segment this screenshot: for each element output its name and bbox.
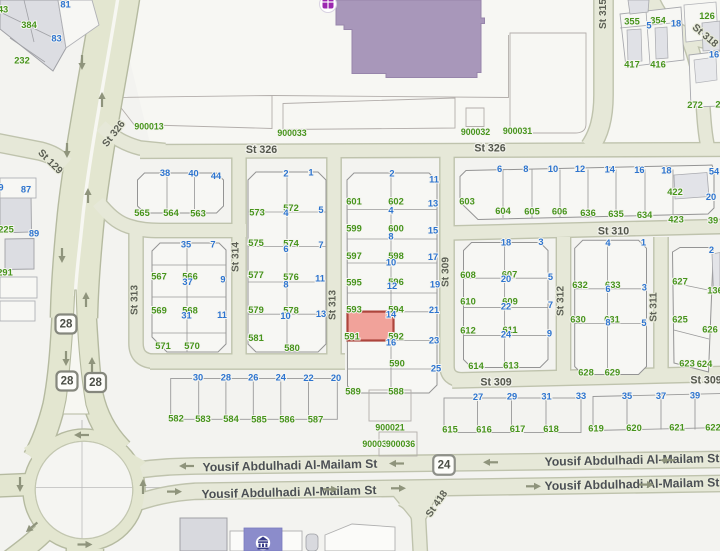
svg-text:31: 31 xyxy=(541,391,551,401)
svg-text:28: 28 xyxy=(61,376,74,388)
svg-text:44: 44 xyxy=(211,171,222,181)
svg-text:900033: 900033 xyxy=(277,128,306,138)
svg-text:25: 25 xyxy=(431,363,441,373)
svg-text:605: 605 xyxy=(524,206,540,216)
svg-text:900013: 900013 xyxy=(134,121,163,131)
svg-text:900036: 900036 xyxy=(386,439,415,449)
svg-text:570: 570 xyxy=(184,341,200,351)
svg-text:8: 8 xyxy=(388,231,393,241)
svg-text:589: 589 xyxy=(345,386,361,396)
svg-text:10: 10 xyxy=(548,164,558,174)
svg-text:23: 23 xyxy=(429,335,439,345)
svg-text:2: 2 xyxy=(709,245,714,255)
svg-text:900031: 900031 xyxy=(503,126,532,136)
svg-text:St 315: St 315 xyxy=(598,0,609,29)
svg-text:7: 7 xyxy=(318,240,323,250)
svg-text:5: 5 xyxy=(318,205,323,215)
svg-text:613: 613 xyxy=(503,360,519,370)
svg-text:573: 573 xyxy=(249,207,265,217)
svg-text:37: 37 xyxy=(182,277,192,287)
svg-text:9: 9 xyxy=(0,182,4,192)
svg-text:603: 603 xyxy=(459,196,475,206)
svg-text:634: 634 xyxy=(637,210,653,220)
svg-text:423: 423 xyxy=(668,214,684,224)
svg-text:81: 81 xyxy=(60,0,70,9)
svg-text:St 326: St 326 xyxy=(474,142,505,154)
svg-text:St 312: St 312 xyxy=(556,286,567,316)
svg-text:136: 136 xyxy=(707,285,720,295)
svg-text:417: 417 xyxy=(624,59,640,69)
svg-text:13: 13 xyxy=(428,198,438,208)
svg-text:6: 6 xyxy=(283,244,288,254)
svg-text:4: 4 xyxy=(605,238,611,248)
svg-text:610: 610 xyxy=(460,296,476,306)
svg-text:601: 601 xyxy=(346,196,362,206)
svg-text:627: 627 xyxy=(672,276,688,286)
svg-text:900021: 900021 xyxy=(375,422,404,432)
svg-text:622: 622 xyxy=(705,422,720,432)
svg-text:38: 38 xyxy=(160,168,170,178)
svg-text:2: 2 xyxy=(389,168,394,178)
svg-text:12: 12 xyxy=(387,281,397,291)
svg-text:614: 614 xyxy=(468,361,484,371)
svg-text:St 313: St 313 xyxy=(130,285,141,315)
svg-text:St 309: St 309 xyxy=(441,257,452,287)
svg-text:2: 2 xyxy=(715,99,720,109)
svg-text:27: 27 xyxy=(473,392,483,402)
svg-text:629: 629 xyxy=(605,367,621,377)
svg-text:28: 28 xyxy=(89,377,102,389)
svg-text:10: 10 xyxy=(280,311,290,321)
svg-text:St 311: St 311 xyxy=(649,292,660,322)
svg-text:29: 29 xyxy=(507,391,517,401)
svg-text:581: 581 xyxy=(248,333,264,343)
svg-text:10: 10 xyxy=(386,257,396,267)
svg-text:619: 619 xyxy=(588,423,604,433)
svg-text:623: 623 xyxy=(679,358,695,368)
svg-text:St 326: St 326 xyxy=(246,144,277,156)
svg-text:35: 35 xyxy=(181,239,191,249)
svg-text:22: 22 xyxy=(303,373,313,383)
svg-text:636: 636 xyxy=(580,208,596,218)
svg-text:577: 577 xyxy=(248,270,264,280)
svg-text:597: 597 xyxy=(346,251,362,261)
svg-text:1: 1 xyxy=(641,237,646,247)
svg-text:625: 625 xyxy=(672,314,688,324)
svg-text:20: 20 xyxy=(501,274,511,284)
svg-text:567: 567 xyxy=(151,271,167,281)
svg-text:35: 35 xyxy=(622,391,632,401)
svg-text:20: 20 xyxy=(706,192,716,202)
svg-text:5: 5 xyxy=(646,20,651,30)
svg-text:565: 565 xyxy=(134,208,150,218)
svg-text:14: 14 xyxy=(605,164,616,174)
svg-text:12: 12 xyxy=(575,164,585,174)
svg-text:4: 4 xyxy=(388,205,394,215)
svg-text:617: 617 xyxy=(510,424,526,434)
svg-text:37: 37 xyxy=(656,391,666,401)
svg-text:3: 3 xyxy=(538,237,543,247)
svg-text:11: 11 xyxy=(315,273,325,283)
svg-text:19: 19 xyxy=(430,279,440,289)
svg-text:17: 17 xyxy=(428,252,438,262)
svg-text:16: 16 xyxy=(386,337,396,347)
svg-text:599: 599 xyxy=(346,223,362,233)
svg-text:635: 635 xyxy=(608,209,624,219)
svg-text:5: 5 xyxy=(641,318,646,328)
svg-text:1: 1 xyxy=(308,167,313,177)
svg-text:31: 31 xyxy=(181,310,191,320)
svg-text:384: 384 xyxy=(21,20,37,30)
svg-text:18: 18 xyxy=(501,237,511,247)
svg-text:587: 587 xyxy=(308,414,324,424)
svg-text:585: 585 xyxy=(251,414,267,424)
svg-text:22: 22 xyxy=(501,301,511,311)
svg-text:24: 24 xyxy=(438,460,451,472)
svg-text:583: 583 xyxy=(195,414,211,424)
svg-text:16: 16 xyxy=(634,165,644,175)
svg-text:28: 28 xyxy=(60,319,73,331)
svg-text:2: 2 xyxy=(283,168,288,178)
svg-text:575: 575 xyxy=(248,238,264,248)
svg-text:83: 83 xyxy=(51,33,61,43)
svg-text:6: 6 xyxy=(605,284,610,294)
svg-text:126: 126 xyxy=(699,11,715,21)
svg-text:579: 579 xyxy=(248,305,264,315)
svg-text:7: 7 xyxy=(548,300,553,310)
svg-text:590: 590 xyxy=(389,358,405,368)
svg-text:11: 11 xyxy=(217,310,227,320)
svg-text:571: 571 xyxy=(155,341,171,351)
svg-text:900032: 900032 xyxy=(461,127,490,137)
svg-text:595: 595 xyxy=(346,277,362,287)
svg-text:612: 612 xyxy=(460,325,476,335)
svg-text:24: 24 xyxy=(276,373,287,383)
svg-text:416: 416 xyxy=(650,59,666,69)
svg-text:9: 9 xyxy=(547,328,552,338)
svg-text:582: 582 xyxy=(168,413,184,423)
svg-text:355: 355 xyxy=(624,16,640,26)
svg-text:569: 569 xyxy=(151,305,167,315)
svg-text:564: 564 xyxy=(163,208,179,218)
svg-text:14: 14 xyxy=(386,309,397,319)
svg-text:618: 618 xyxy=(543,424,559,434)
svg-text:354: 354 xyxy=(650,15,666,25)
svg-text:225: 225 xyxy=(0,224,14,234)
svg-text:St 309: St 309 xyxy=(690,374,720,386)
svg-text:26: 26 xyxy=(248,372,258,382)
svg-text:291: 291 xyxy=(0,267,13,277)
svg-text:624: 624 xyxy=(697,359,713,369)
svg-text:16: 16 xyxy=(709,49,719,59)
svg-text:422: 422 xyxy=(667,187,683,197)
svg-text:616: 616 xyxy=(476,424,492,434)
svg-text:604: 604 xyxy=(495,206,511,216)
svg-text:St 310: St 310 xyxy=(598,225,629,237)
svg-text:St 309: St 309 xyxy=(480,377,511,389)
svg-text:272: 272 xyxy=(687,100,703,110)
svg-text:39: 39 xyxy=(708,215,718,225)
svg-text:33: 33 xyxy=(576,391,586,401)
svg-text:620: 620 xyxy=(626,423,642,433)
svg-text:588: 588 xyxy=(388,386,404,396)
svg-text:8: 8 xyxy=(523,164,528,174)
svg-text:89: 89 xyxy=(29,228,39,238)
svg-text:621: 621 xyxy=(669,422,685,432)
svg-text:8: 8 xyxy=(283,279,288,289)
svg-text:39: 39 xyxy=(690,390,700,400)
svg-text:20: 20 xyxy=(331,373,341,383)
svg-text:615: 615 xyxy=(442,424,458,434)
svg-text:St 313: St 313 xyxy=(328,290,339,320)
svg-text:18: 18 xyxy=(671,18,681,28)
svg-text:584: 584 xyxy=(223,414,239,424)
svg-text:9: 9 xyxy=(220,274,225,284)
svg-text:593: 593 xyxy=(346,304,362,314)
svg-text:630: 630 xyxy=(570,314,586,324)
svg-text:87: 87 xyxy=(21,184,31,194)
svg-text:3: 3 xyxy=(642,282,647,292)
svg-text:21: 21 xyxy=(429,305,439,315)
svg-text:563: 563 xyxy=(190,208,206,218)
svg-text:40: 40 xyxy=(188,168,198,178)
svg-text:606: 606 xyxy=(552,206,568,216)
svg-text:626: 626 xyxy=(702,324,718,334)
svg-text:18: 18 xyxy=(661,165,671,175)
svg-text:4: 4 xyxy=(283,208,289,218)
svg-text:43: 43 xyxy=(0,4,8,14)
svg-text:30: 30 xyxy=(193,372,203,382)
svg-text:24: 24 xyxy=(501,329,512,339)
svg-text:608: 608 xyxy=(460,270,476,280)
svg-text:15: 15 xyxy=(428,225,438,235)
svg-text:11: 11 xyxy=(429,174,439,184)
svg-text:13: 13 xyxy=(316,309,326,319)
svg-text:6: 6 xyxy=(497,164,502,174)
svg-text:54: 54 xyxy=(709,166,720,176)
svg-text:580: 580 xyxy=(284,343,300,353)
svg-text:591: 591 xyxy=(344,331,360,341)
svg-text:28: 28 xyxy=(221,372,231,382)
svg-text:632: 632 xyxy=(572,280,588,290)
svg-text:586: 586 xyxy=(279,414,295,424)
svg-text:8: 8 xyxy=(605,317,610,327)
svg-text:5: 5 xyxy=(548,272,553,282)
svg-text:7: 7 xyxy=(210,239,215,249)
svg-text:232: 232 xyxy=(14,55,30,65)
svg-text:628: 628 xyxy=(578,367,594,377)
svg-text:St 314: St 314 xyxy=(231,242,242,272)
